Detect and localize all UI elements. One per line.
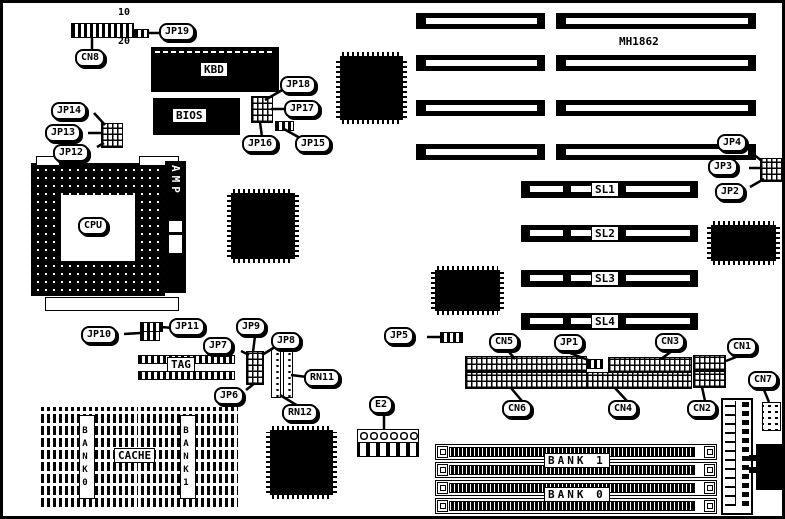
jp12-label: JP12 [53, 144, 89, 162]
jp10-label: JP10 [81, 326, 117, 344]
jp4-label: JP4 [717, 134, 747, 152]
jp8-label: JP8 [271, 332, 301, 350]
bank1-chips-label: BANK1 [180, 415, 196, 499]
cn8-pin10-number: 10 [118, 7, 130, 18]
cpu-label: CPU [78, 217, 108, 235]
cn8-label: CN8 [75, 49, 105, 67]
cn8-pin20-number: 20 [118, 36, 130, 47]
amp-label: AMP [169, 165, 182, 197]
board-model-text: MH1862 [619, 35, 659, 48]
jp2-label: JP2 [715, 183, 745, 201]
amp-regulator-strip: AMP [165, 161, 186, 293]
jp9-label: JP9 [236, 318, 266, 336]
jp18-label: JP18 [280, 76, 316, 94]
jp3-label: JP3 [708, 158, 738, 176]
tag-chip-label: TAG [167, 357, 195, 372]
jp6-label: JP6 [214, 387, 244, 405]
jp7-label: JP7 [203, 337, 233, 355]
kbd-chip-label: KBD [200, 62, 228, 77]
jp11-label: JP11 [169, 318, 205, 336]
jp19-label: JP19 [159, 23, 195, 41]
cn7-label: CN7 [748, 371, 778, 389]
jp15-label: JP15 [295, 135, 331, 153]
cn4-label: CN4 [608, 400, 638, 418]
bank0-chips-label: BANK0 [79, 415, 95, 499]
cn5-label: CN5 [489, 333, 519, 351]
sl3-label: SL3 [591, 271, 619, 286]
jp16-label: JP16 [242, 135, 278, 153]
motherboard-diagram: 10 20 JP19 CN8 KBD BIOS JP18 JP17 JP16 J… [0, 0, 785, 519]
rn11-label: RN11 [304, 369, 340, 387]
cn1-label: CN1 [727, 338, 757, 356]
jp17-label: JP17 [284, 100, 320, 118]
cn3-label: CN3 [655, 333, 685, 351]
e2-label: E2 [369, 396, 393, 414]
rn12-label: RN12 [282, 404, 318, 422]
jp13-label: JP13 [45, 124, 81, 142]
bank0-simm-label: BANK 0 [544, 487, 610, 502]
jp14-label: JP14 [51, 102, 87, 120]
sl2-label: SL2 [591, 226, 619, 241]
amp-strip-pad-2 [169, 235, 182, 253]
sl1-label: SL1 [591, 182, 619, 197]
bios-chip-label: BIOS [172, 108, 207, 123]
sl4-label: SL4 [591, 314, 619, 329]
amp-strip-pad-1 [169, 221, 182, 232]
bank1-simm-label: BANK 1 [544, 453, 610, 468]
cache-label: CACHE [114, 448, 155, 463]
leader-lines [3, 3, 785, 519]
jp1-label: JP1 [554, 334, 584, 352]
jp5-label: JP5 [384, 327, 414, 345]
cn6-label: CN6 [502, 400, 532, 418]
cn2-label: CN2 [687, 400, 717, 418]
